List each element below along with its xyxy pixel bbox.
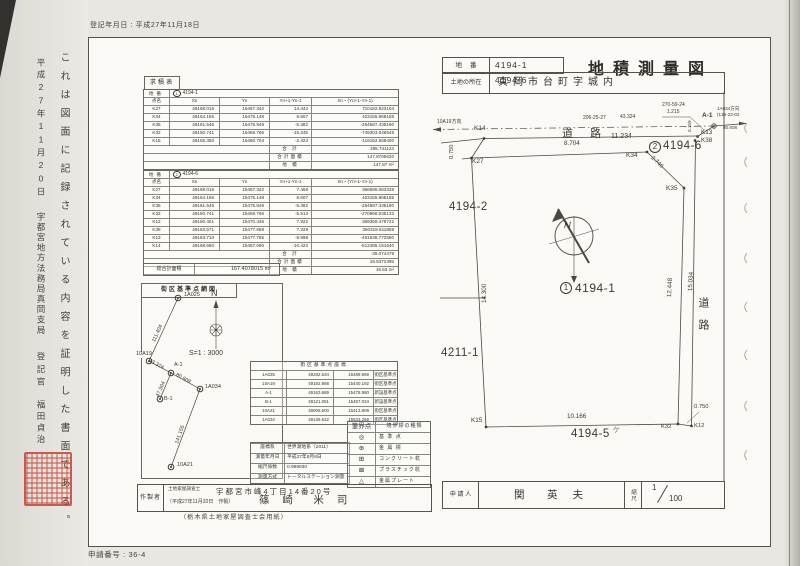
point-a1-label: A-1 [702, 113, 712, 120]
dist-0750-left: 0.750 [450, 144, 456, 159]
lot-4211-1-label: 4211-1 [441, 348, 479, 360]
circled-2-map: 2 [649, 141, 661, 153]
scanned-cadastral-survey-page: 登記年月日 : 平成27年11月18日 申請番号 : 36-4 これは図面に記録… [0, 0, 800, 566]
north-compass [549, 209, 599, 283]
angle-206-25-27: 206-25-27 [583, 116, 606, 121]
lot1-number: 4194-1 [575, 282, 615, 294]
lot-4194-2-label: 4194-2 [449, 202, 488, 214]
lot-4194-6-label: 2 4194-6 [649, 141, 702, 153]
point-k38-label: K38 [701, 138, 712, 144]
scan-binding-marks [745, 123, 747, 460]
angle-270-59-24: 270-59-24 [662, 103, 685, 108]
handwritten-mark: ヶ [612, 425, 621, 434]
dist-0159: 0.159 [688, 121, 693, 133]
point-k35-label: K35 [666, 186, 678, 193]
angle-136-22-02: (136-22-02 [717, 113, 739, 118]
dist-11234: 11.234 [611, 133, 632, 140]
dir-1a034-label: 1A034方向 [717, 107, 739, 112]
point-k27-label: K27 [472, 159, 484, 166]
dist-0750-right: 0.750 [694, 405, 709, 411]
dist-43324: 43.324 [620, 115, 635, 120]
dist-15034: 15.034 [688, 272, 695, 292]
a1-point-marker [712, 124, 717, 129]
network-node-symbols [146, 295, 203, 470]
dist-14300: 14.300 [482, 284, 488, 303]
point-k34-label: K34 [626, 153, 638, 160]
road-right-label: 道路 [697, 297, 708, 341]
dist-80608: 80.608 [723, 126, 737, 131]
dist-8704: 8.704 [564, 141, 580, 147]
dist-1215: 1.215 [667, 110, 680, 115]
dist-12448: 12.448 [667, 278, 674, 298]
network-lines [149, 298, 200, 467]
network-north-arrow [210, 300, 222, 349]
point-k14-label: K14 [474, 126, 486, 133]
dist-10166: 10.166 [567, 414, 586, 420]
point-k32-label: K32 [661, 425, 671, 431]
map-linework [0, 0, 800, 566]
lot-4194-5-label: 4194-5 [571, 429, 610, 441]
compass-n-label: N [564, 221, 571, 231]
circled-1-map: 1 [560, 282, 572, 294]
point-k12-label: K12 [694, 424, 704, 430]
point-k15-label: K15 [471, 418, 482, 424]
lot-4194-1-label: 1 4194-1 [560, 282, 615, 294]
point-k13-label: K13 [701, 130, 712, 136]
lot6-number: 4194-6 [663, 141, 702, 153]
dir-10a19-label: 10A19方向 [437, 120, 461, 125]
road-top-label: 道 路 [562, 129, 608, 140]
